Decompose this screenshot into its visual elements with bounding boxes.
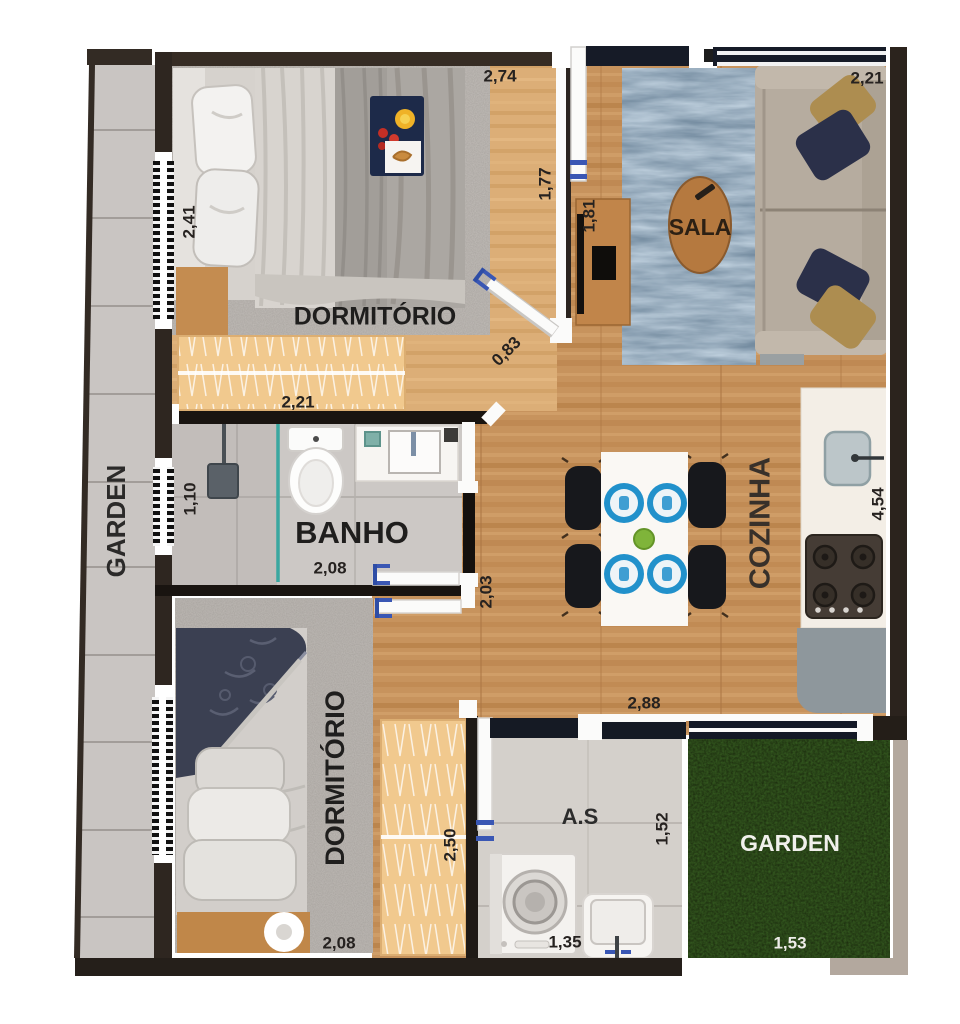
svg-text:SALA: SALA <box>669 214 732 240</box>
svg-text:A.S: A.S <box>562 804 599 829</box>
svg-text:1,10: 1,10 <box>180 482 199 515</box>
svg-text:1,52: 1,52 <box>652 812 671 845</box>
svg-text:BANHO: BANHO <box>295 515 409 550</box>
svg-text:2,08: 2,08 <box>313 558 346 577</box>
svg-text:4,54: 4,54 <box>868 487 887 521</box>
svg-text:2,74: 2,74 <box>483 66 517 85</box>
svg-text:1,81: 1,81 <box>579 199 598 232</box>
svg-text:2,88: 2,88 <box>627 693 660 712</box>
svg-text:DORMITÓRIO: DORMITÓRIO <box>319 690 350 866</box>
svg-text:1,35: 1,35 <box>548 932 581 951</box>
svg-text:2,03: 2,03 <box>476 575 495 608</box>
svg-text:DORMITÓRIO: DORMITÓRIO <box>294 301 457 331</box>
svg-text:2,50: 2,50 <box>440 828 459 861</box>
svg-text:1,53: 1,53 <box>773 933 806 952</box>
svg-text:2,08: 2,08 <box>322 933 355 952</box>
svg-text:GARDEN: GARDEN <box>740 830 840 856</box>
svg-text:2,41: 2,41 <box>179 205 198 238</box>
svg-text:2,21: 2,21 <box>850 68 883 87</box>
svg-text:GARDEN: GARDEN <box>101 465 131 578</box>
svg-text:COZINHA: COZINHA <box>745 457 777 589</box>
svg-text:1,77: 1,77 <box>535 167 554 200</box>
svg-text:2,21: 2,21 <box>281 392 314 411</box>
